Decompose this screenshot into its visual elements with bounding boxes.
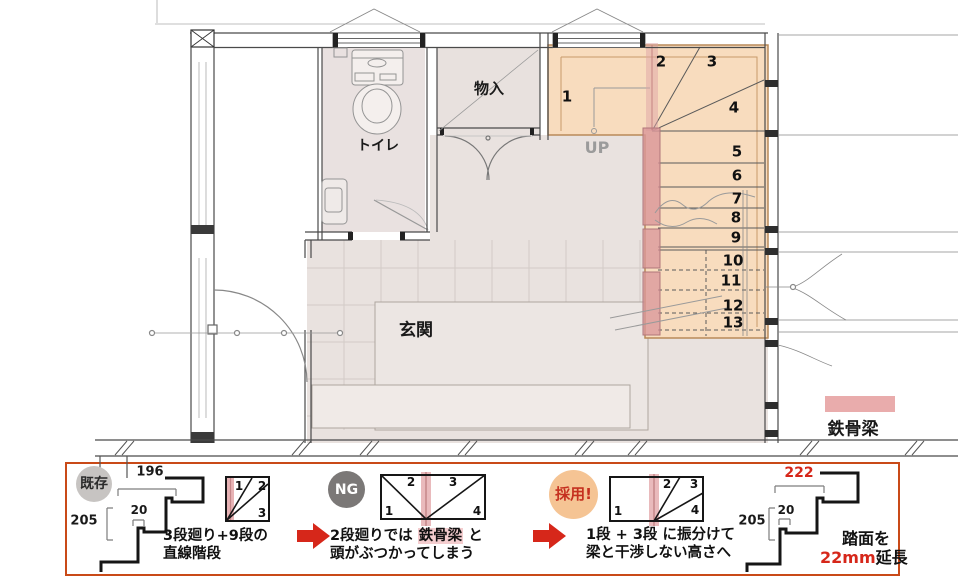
step-number: 12: [723, 299, 744, 314]
diagram-step-number: 4: [473, 505, 481, 517]
step-number: 1: [562, 90, 572, 105]
ng-badge: NG: [328, 471, 365, 508]
step-number: 3: [707, 55, 717, 70]
extend-suffix-text: 延長: [876, 548, 908, 567]
diagram-step-number: 2: [663, 478, 671, 490]
ng-caption-pre: 2段廻りでは: [330, 528, 418, 544]
diagram-step-number: 3: [258, 507, 266, 519]
step-number: 5: [732, 145, 742, 160]
arrow-right: [297, 523, 330, 549]
dim-nosing-existing: 20: [131, 504, 148, 516]
step-number: 13: [723, 316, 744, 331]
existing-caption-line2: 直線階段: [163, 546, 221, 563]
ng-caption-line1: 2段廻りでは 鉄骨梁 と: [330, 528, 483, 545]
adopted-badge: 採用!: [549, 470, 598, 519]
arrow-right: [533, 523, 566, 549]
steel-beam-legend-swatch: [825, 396, 895, 412]
extend-value-text: 22mm: [820, 548, 876, 567]
step-number: 9: [731, 231, 741, 246]
steel-beam-legend-label: 鉄骨梁: [828, 422, 879, 439]
room-label-toilet: トイレ: [357, 139, 399, 153]
room-label-storage: 物入: [474, 82, 504, 97]
ng-caption-line2: 頭がぶつかってしまう: [330, 546, 474, 563]
dim-riser-adopted: 205: [738, 515, 765, 528]
diagram-step-number: 4: [691, 504, 699, 516]
step-number: 2: [656, 55, 666, 70]
existing-caption-line1: 3段廻り+9段の: [163, 528, 268, 545]
diagram-step-number: 1: [235, 480, 243, 492]
diagram-step-number: 1: [614, 505, 622, 517]
diagram-step-number: 2: [258, 480, 266, 492]
adopted-caption-line1: 1段 + 3段 に振分けて: [586, 527, 735, 544]
ng-winder-diagram: [381, 472, 485, 526]
steel-beam-highlight-text: 鉄骨梁: [418, 528, 464, 544]
dim-riser-existing: 205: [70, 515, 97, 528]
ng-caption-post: と: [463, 528, 483, 544]
step-number: 7: [732, 192, 742, 207]
adopted-caption-line2: 梁と干渉しない高さへ: [586, 545, 731, 562]
extend-caption-line1: 踏面を: [824, 529, 890, 548]
extend-caption-line2: 22mm延長: [820, 548, 892, 567]
dim-nosing-adopted: 20: [778, 504, 795, 516]
diagram-step-number: 1: [385, 505, 393, 517]
up-label: UP: [585, 140, 610, 156]
step-number: 10: [723, 254, 744, 269]
dim-tread-existing: 196: [136, 466, 163, 479]
dim-tread-adopted: 222: [784, 466, 813, 480]
diagram-step-number: 2: [407, 476, 415, 488]
step-number: 11: [721, 274, 742, 289]
step-number: 8: [731, 211, 741, 226]
existing-badge: 既存: [76, 466, 112, 502]
step-number: 6: [732, 169, 742, 184]
diagram-step-number: 3: [449, 476, 457, 488]
room-label-entrance: 玄関: [399, 323, 433, 340]
diagram-step-number: 3: [690, 478, 698, 490]
floor-plan-page: トイレ 物入 玄関 UP 1 2 3 4 5 6 7 8 9 10 11 12 …: [0, 0, 960, 580]
step-number: 4: [729, 101, 739, 116]
